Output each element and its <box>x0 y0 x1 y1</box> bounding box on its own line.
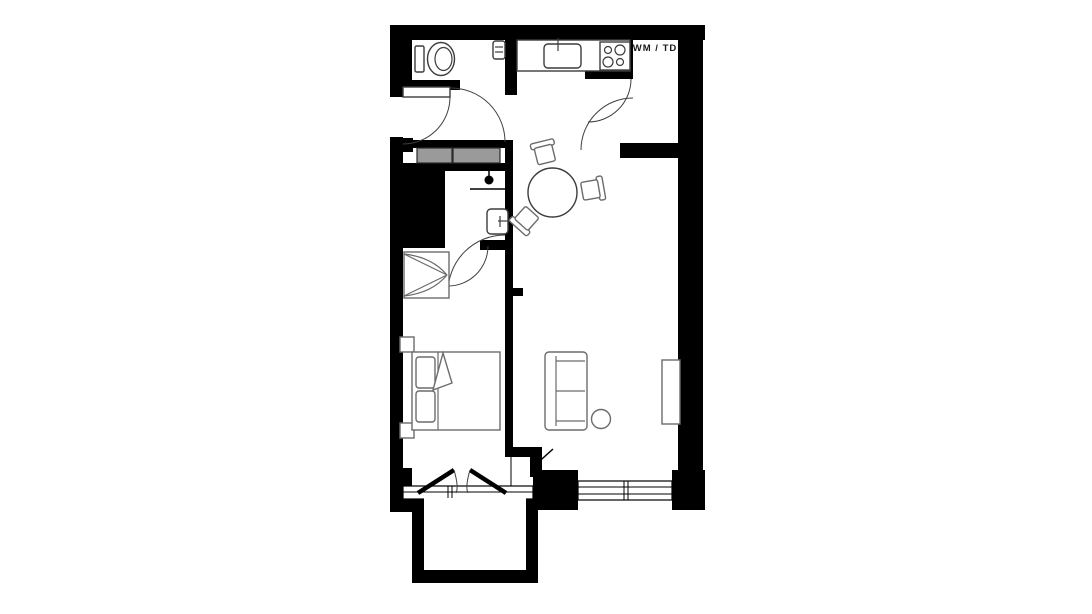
radiator-body <box>493 41 505 59</box>
wall-pier-bottom-center <box>533 470 578 510</box>
entry-door-leaf <box>403 87 450 97</box>
washbasin <box>487 209 509 234</box>
wall-pier-bottom-right <box>672 470 705 510</box>
dining-table <box>528 168 577 217</box>
wall-shower-north <box>445 163 513 171</box>
service-shaft <box>403 163 445 248</box>
balcony <box>424 498 526 570</box>
wall-top <box>390 25 705 40</box>
bedroom <box>400 252 500 438</box>
utility-niche-label: WM / TD <box>633 43 677 54</box>
wall-divider-return-h <box>505 447 542 457</box>
chair-seat <box>581 180 601 201</box>
hall-closet <box>453 148 500 163</box>
shower-fixture-dot <box>485 176 494 185</box>
wall-right <box>678 25 703 472</box>
toilet-cistern <box>415 46 424 72</box>
bathroom-radiator <box>493 41 505 59</box>
pillow <box>416 391 435 422</box>
floor-plan-svg: WM / TD <box>0 0 1092 614</box>
side-table <box>592 410 611 429</box>
wardrobe <box>404 252 449 298</box>
bedside-unit <box>400 337 414 352</box>
bathroom-door-swing <box>451 88 505 142</box>
wall-left-lower <box>390 137 403 470</box>
living-room <box>545 352 680 430</box>
chair-seat <box>534 144 556 165</box>
wall-left-upper <box>390 25 412 87</box>
sofa <box>545 352 587 430</box>
wall-left-entry-jamb <box>390 87 403 97</box>
stove <box>600 42 630 70</box>
toilet <box>415 43 455 76</box>
sink-basin <box>544 44 581 68</box>
double-bed <box>412 352 500 430</box>
pillow <box>416 357 435 388</box>
wall-bedroom-door-stub <box>505 288 523 296</box>
wall-hall-kitchen-upper <box>505 40 517 95</box>
wall-bedroom-living-divider <box>505 296 513 447</box>
balcony-wall-bottom <box>412 570 538 583</box>
shower-room <box>470 166 509 234</box>
wall-shower-south <box>480 240 513 250</box>
utility-niche-door-swing <box>581 98 633 150</box>
wardrobe-body <box>404 252 449 298</box>
hallway <box>417 148 500 163</box>
sideboard <box>662 360 680 424</box>
window-frame <box>578 481 672 500</box>
living-room-window <box>578 481 672 500</box>
balcony-wall-right <box>526 498 538 583</box>
entry-door-swing <box>403 97 450 144</box>
wall-utility-niche-south <box>620 143 678 158</box>
dining-chair <box>530 139 559 166</box>
kitchen: WM / TD <box>517 38 677 71</box>
bathroom <box>415 41 505 76</box>
floor-plan-page: WM / TD <box>0 0 1092 614</box>
balcony-floor <box>424 498 526 570</box>
dining-chair <box>580 176 606 203</box>
dining-set <box>509 139 606 237</box>
hall-closet <box>417 148 452 163</box>
